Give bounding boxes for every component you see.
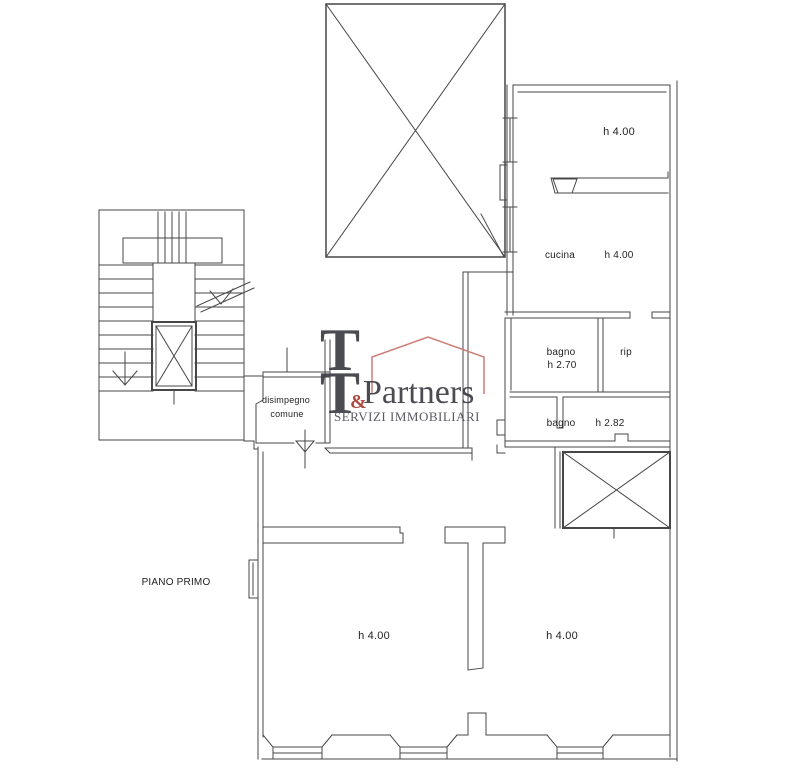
label-bagno1-height: h 2.70 bbox=[547, 361, 576, 371]
floor-plan-drawing bbox=[0, 0, 812, 768]
floor-plan-page: h 4.00 cucina h 4.00 bagno h 2.70 rip ba… bbox=[0, 0, 812, 768]
label-bagno2: bagno bbox=[547, 419, 576, 429]
label-disimpegno-line1: disimpegno bbox=[262, 396, 310, 405]
right-wing-partitions bbox=[497, 172, 670, 447]
bottom-wall-windows bbox=[263, 713, 670, 759]
label-bagno1: bagno bbox=[547, 348, 576, 358]
door-swing-symbol bbox=[553, 179, 577, 193]
shaft-void bbox=[555, 447, 670, 538]
stairwell bbox=[99, 210, 254, 440]
label-rip: rip bbox=[620, 348, 632, 358]
courtyard-void bbox=[326, 4, 505, 257]
label-room-se-height: h 4.00 bbox=[546, 631, 578, 642]
elevator bbox=[152, 322, 196, 404]
label-bagno2-height: h 2.82 bbox=[595, 419, 624, 429]
corridor-walls bbox=[263, 272, 513, 670]
right-wing-west-wall bbox=[481, 85, 577, 315]
logo-house-outline bbox=[372, 337, 484, 394]
label-cucina-height: h 4.00 bbox=[604, 251, 633, 261]
label-disimpegno-line2: comune bbox=[270, 410, 303, 419]
label-room-sw-height: h 4.00 bbox=[358, 631, 390, 642]
label-floor-title: PIANO PRIMO bbox=[142, 578, 211, 588]
label-cucina: cucina bbox=[545, 251, 575, 261]
label-room-ne-height: h 4.00 bbox=[603, 127, 635, 138]
stair-direction-arrow bbox=[113, 352, 137, 385]
door-leaf bbox=[481, 214, 504, 257]
